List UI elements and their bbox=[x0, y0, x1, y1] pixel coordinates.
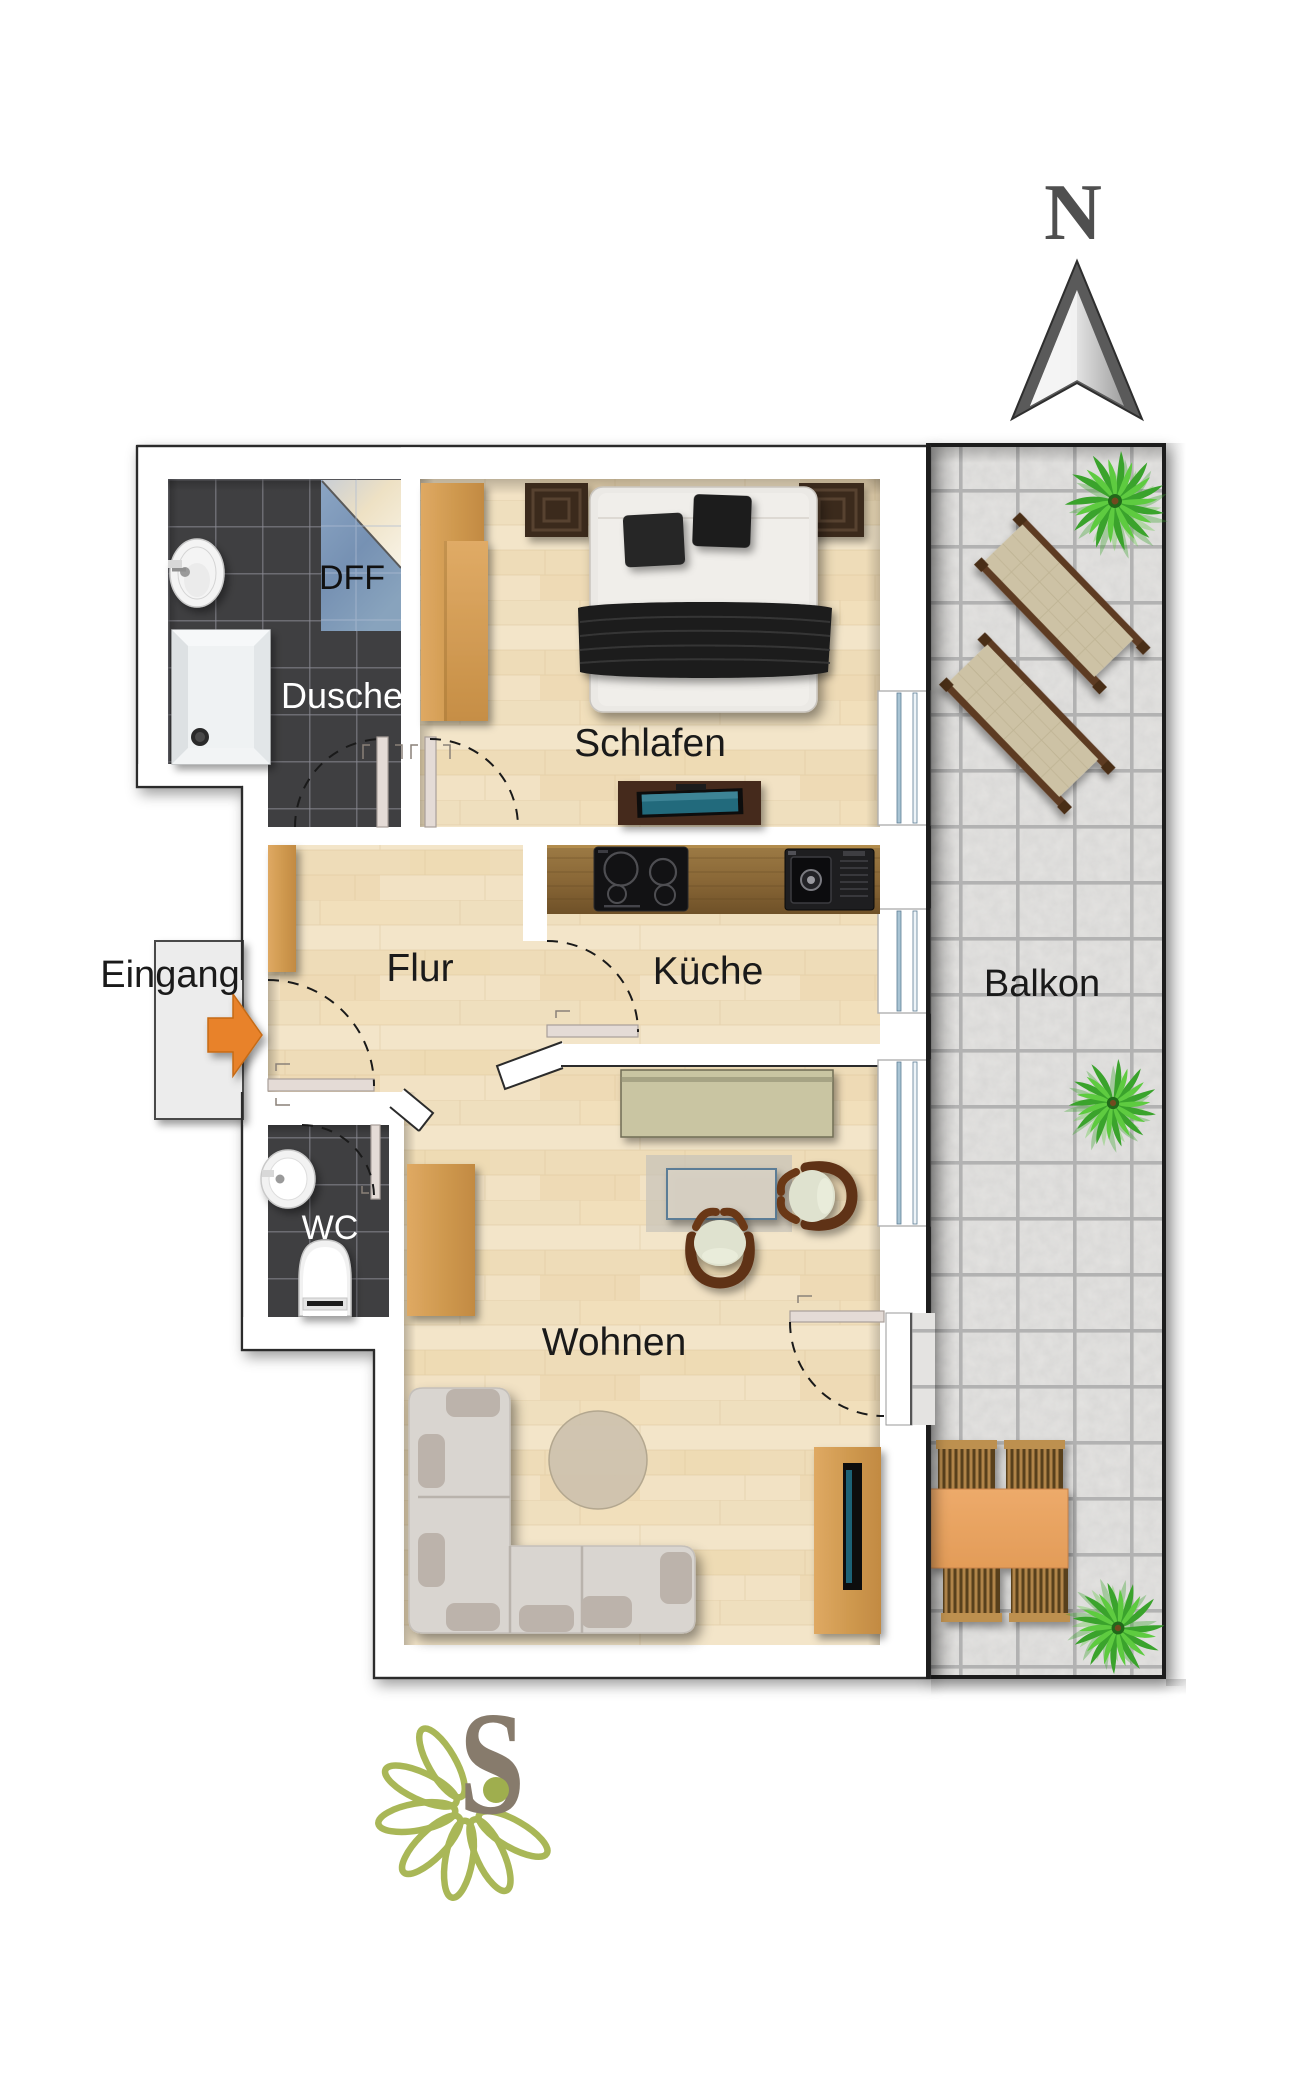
svg-text:Eingang: Eingang bbox=[100, 954, 239, 996]
svg-text:Wohnen: Wohnen bbox=[542, 1321, 687, 1364]
svg-text:S: S bbox=[459, 1682, 525, 1845]
svg-text:Dusche: Dusche bbox=[281, 675, 403, 716]
svg-text:Küche: Küche bbox=[653, 950, 764, 993]
svg-text:Flur: Flur bbox=[386, 947, 453, 990]
svg-text:DFF: DFF bbox=[319, 559, 385, 597]
svg-text:Balkon: Balkon bbox=[984, 963, 1100, 1005]
svg-text:Schlafen: Schlafen bbox=[574, 722, 726, 765]
svg-text:N: N bbox=[1044, 169, 1102, 257]
